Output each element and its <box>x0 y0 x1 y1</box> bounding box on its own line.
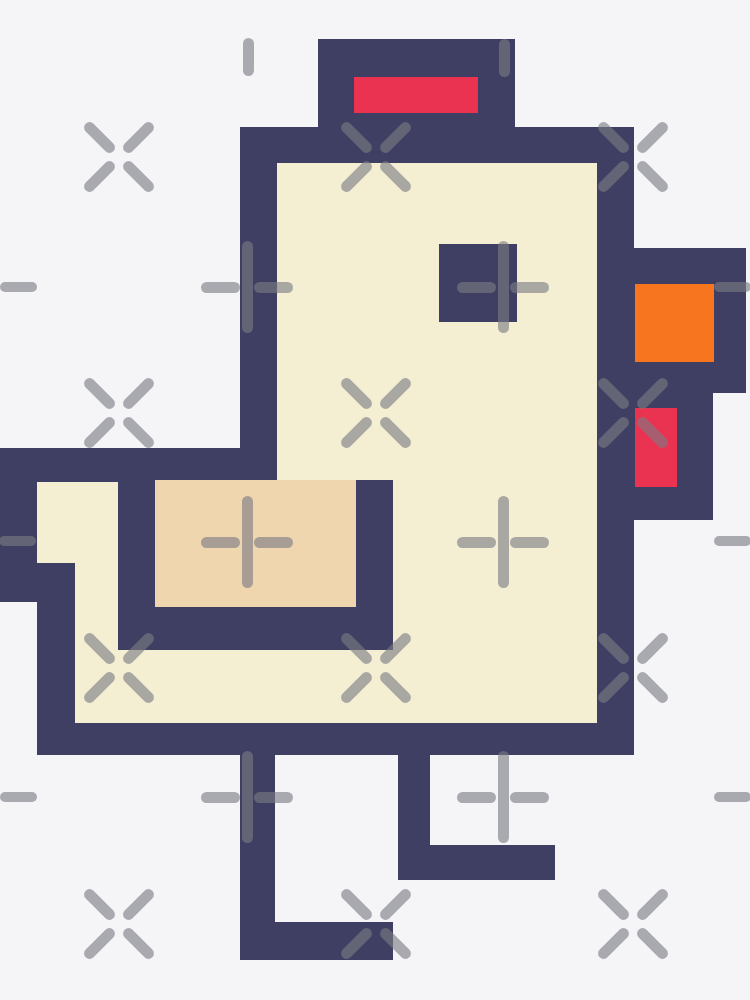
pattern-cross-icon <box>120 669 155 704</box>
pattern-cross-icon <box>596 925 631 960</box>
pattern-cross-icon <box>82 414 117 449</box>
pattern-plus-icon <box>201 282 240 293</box>
pattern-plus-icon <box>201 792 240 803</box>
pattern-cross-icon <box>596 669 631 704</box>
pattern-cross-icon <box>634 158 669 193</box>
pattern-cross-icon <box>339 887 374 922</box>
pattern-cross-icon <box>339 158 374 193</box>
pattern-cross-icon <box>339 120 374 155</box>
pattern-cross-icon <box>120 376 155 411</box>
pattern-hdash-icon <box>714 536 750 546</box>
pattern-cross-icon <box>82 120 117 155</box>
pattern-plus-icon <box>457 537 496 548</box>
pattern-cross-icon <box>596 631 631 666</box>
pattern-plus-icon <box>242 241 253 333</box>
pattern-plus-icon <box>242 751 253 843</box>
pattern-hdash-icon <box>0 792 37 802</box>
pattern-cross-icon <box>377 414 412 449</box>
pattern-plus-icon <box>498 751 509 843</box>
pattern-cross-icon <box>82 887 117 922</box>
pattern-plus-icon <box>457 282 496 293</box>
pattern-cross-icon <box>120 925 155 960</box>
pattern-cross-icon <box>377 669 412 704</box>
pattern-cross-icon <box>377 887 412 922</box>
pattern-plus-icon <box>510 282 549 293</box>
pattern-cross-icon <box>120 887 155 922</box>
pattern-cross-icon <box>120 631 155 666</box>
pattern-cross-icon <box>339 631 374 666</box>
pattern-plus-icon <box>510 537 549 548</box>
pattern-cross-icon <box>377 925 412 960</box>
pattern-plus-icon <box>254 792 293 803</box>
pattern-cross-icon <box>596 376 631 411</box>
pattern-cross-icon <box>634 887 669 922</box>
pattern-cross-icon <box>634 414 669 449</box>
pattern-cross-icon <box>634 669 669 704</box>
pattern-cross-icon <box>596 120 631 155</box>
pattern-plus-icon <box>498 241 509 333</box>
pattern-hdash-icon <box>714 282 750 292</box>
pattern-cross-icon <box>339 925 374 960</box>
pattern-hdash-icon <box>714 792 750 802</box>
pattern-cross-icon <box>339 376 374 411</box>
pattern-plus-icon <box>254 537 293 548</box>
pattern-cross-icon <box>82 669 117 704</box>
pattern-plus-icon <box>457 792 496 803</box>
pattern-cross-icon <box>634 631 669 666</box>
pattern-cross-icon <box>339 414 374 449</box>
pattern-vdash-icon <box>243 38 254 76</box>
pattern-plus-icon <box>201 537 240 548</box>
pattern-cross-icon <box>120 158 155 193</box>
pattern-cross-icon <box>377 631 412 666</box>
pattern-cross-icon <box>377 120 412 155</box>
pattern-cross-icon <box>120 414 155 449</box>
pattern-cross-icon <box>634 925 669 960</box>
pattern-cross-icon <box>82 376 117 411</box>
pattern-hdash-icon <box>0 536 36 546</box>
pattern-plus-icon <box>510 792 549 803</box>
pattern-cross-icon <box>82 631 117 666</box>
pattern-cross-icon <box>377 158 412 193</box>
sticker-canvas <box>0 0 750 1000</box>
pattern-cross-icon <box>339 669 374 704</box>
transparency-pattern <box>0 0 750 1000</box>
pattern-plus-icon <box>254 282 293 293</box>
pattern-vdash-icon <box>499 39 510 77</box>
pattern-plus-icon <box>498 496 509 588</box>
pattern-cross-icon <box>596 158 631 193</box>
pattern-cross-icon <box>377 376 412 411</box>
pattern-cross-icon <box>634 120 669 155</box>
pattern-cross-icon <box>82 158 117 193</box>
pattern-cross-icon <box>634 376 669 411</box>
pattern-hdash-icon <box>0 282 37 292</box>
pattern-cross-icon <box>120 120 155 155</box>
pattern-cross-icon <box>82 925 117 960</box>
pattern-cross-icon <box>596 887 631 922</box>
pattern-plus-icon <box>242 496 253 588</box>
pattern-cross-icon <box>596 414 631 449</box>
